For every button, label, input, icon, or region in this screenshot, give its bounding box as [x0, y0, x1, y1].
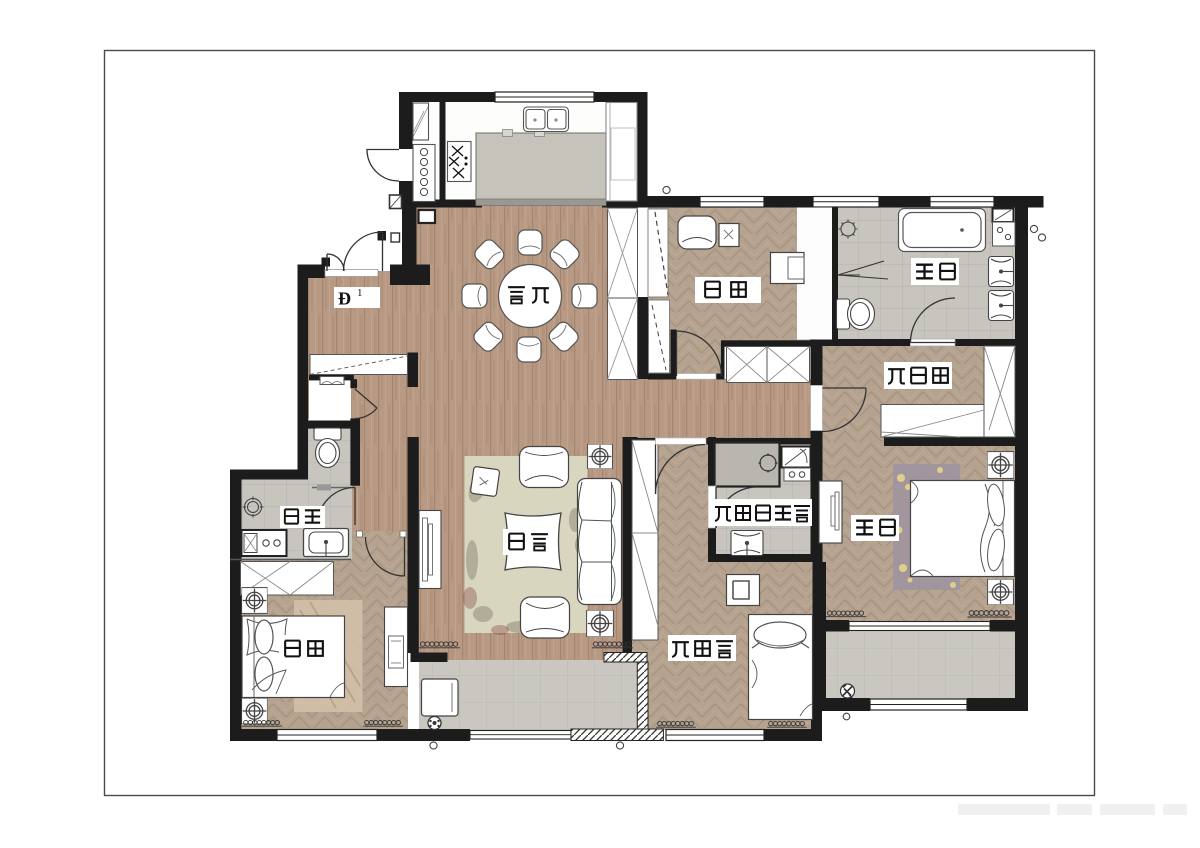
svg-text:1: 1: [357, 287, 363, 299]
svg-text:Đ: Đ: [338, 289, 351, 309]
